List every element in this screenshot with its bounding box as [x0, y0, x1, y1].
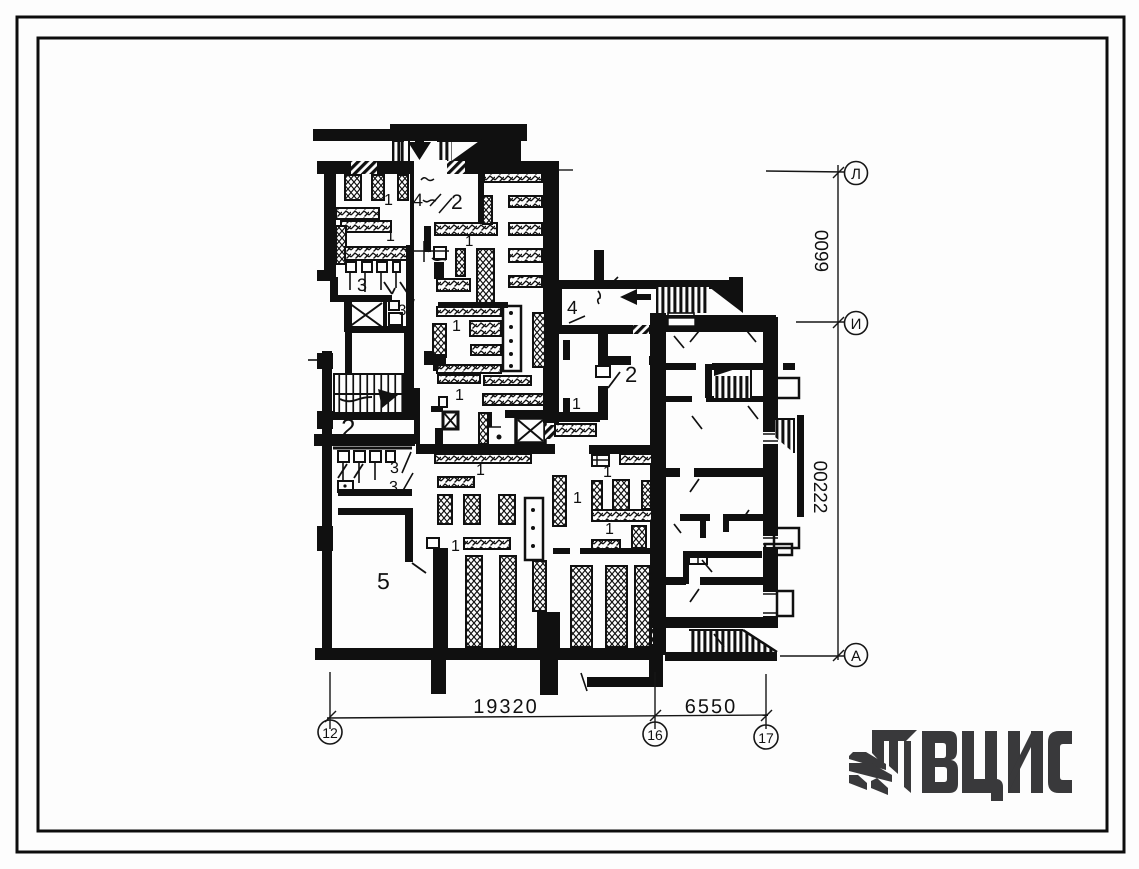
svg-text:И: И — [851, 316, 862, 333]
svg-text:1: 1 — [603, 464, 612, 481]
svg-text:4: 4 — [413, 190, 423, 210]
svg-text:2: 2 — [451, 191, 463, 214]
svg-text:6550: 6550 — [685, 696, 738, 718]
svg-text:1: 1 — [465, 233, 473, 250]
svg-text:Л: Л — [851, 166, 861, 183]
svg-text:3: 3 — [398, 302, 406, 319]
svg-text:1: 1 — [455, 387, 464, 404]
svg-text:1: 1 — [452, 318, 461, 335]
svg-text:17: 17 — [758, 730, 774, 746]
svg-text:1: 1 — [572, 396, 581, 413]
svg-text:1: 1 — [451, 538, 460, 555]
svg-text:3: 3 — [390, 460, 399, 477]
svg-text:1: 1 — [386, 228, 395, 245]
svg-text:5: 5 — [377, 568, 390, 594]
svg-text:3: 3 — [357, 275, 367, 295]
svg-text:19320: 19320 — [473, 696, 539, 718]
svg-text:0099: 0099 — [810, 230, 831, 272]
svg-text:1: 1 — [573, 490, 582, 507]
svg-text:1: 1 — [384, 192, 393, 209]
svg-text:1: 1 — [476, 462, 485, 479]
svg-text:А: А — [851, 648, 861, 665]
svg-text:00222: 00222 — [809, 461, 830, 514]
svg-text:12: 12 — [322, 725, 338, 741]
svg-text:1: 1 — [605, 521, 614, 538]
svg-text:16: 16 — [647, 727, 663, 743]
svg-text:2: 2 — [625, 362, 637, 387]
svg-text:4: 4 — [567, 298, 578, 319]
